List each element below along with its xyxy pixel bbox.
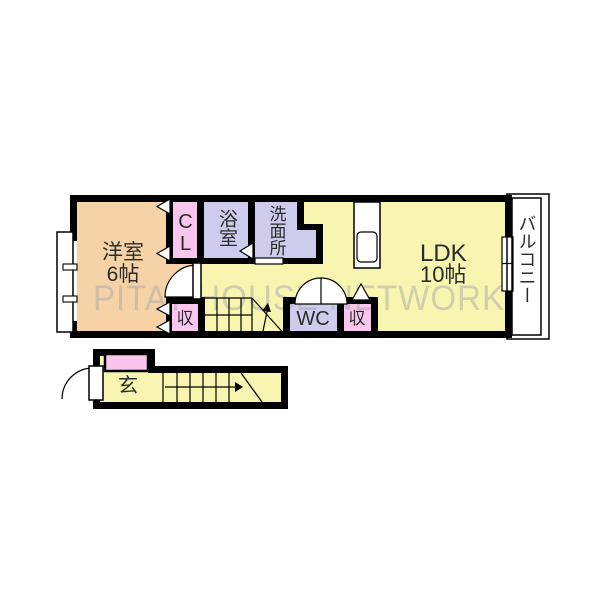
- wall-wc-left: [283, 297, 290, 338]
- wall-entrance-stairs-top: [148, 366, 288, 373]
- western-window-tick-1: [63, 264, 77, 270]
- wall-storage-right-right: [371, 297, 378, 338]
- shoe-cabinet: [105, 354, 148, 371]
- storage-right-label: 収: [349, 309, 366, 328]
- western-door-leaf: [193, 263, 201, 299]
- balcony-label: バルコニー: [517, 214, 537, 304]
- wall-bottom: [70, 331, 512, 338]
- ldk-label-line2: 10帖: [420, 262, 466, 287]
- wc-label: WC: [296, 308, 329, 330]
- wall-closet-right: [197, 195, 204, 264]
- floorplan-drawing: PITAT HOUSE NETWORK: [0, 0, 600, 600]
- floorplan-canvas: PITAT HOUSE NETWORK: [0, 0, 600, 600]
- entrance-door-leaf: [89, 366, 103, 400]
- wall-washroom-bottom: [283, 258, 323, 264]
- storage-left-label: 収: [177, 309, 194, 328]
- western-room-label-line1: 洋室: [102, 241, 144, 264]
- entrance-label: 玄: [118, 374, 138, 397]
- wall-entrance-left-upper: [93, 349, 100, 366]
- kitchen-counter: [354, 202, 380, 268]
- washroom-ext-fill: [255, 230, 316, 258]
- washroom-door-threshold: [255, 258, 283, 264]
- wall-entrance-bottom: [93, 402, 288, 409]
- wall-closet-bath-bottom: [166, 258, 255, 264]
- closet-label: CL: [175, 211, 197, 255]
- washroom-label: 洗面所: [267, 205, 287, 256]
- wall-storage-left-right: [198, 297, 205, 338]
- western-room-label-line2: 6帖: [107, 263, 140, 286]
- wall-top: [70, 195, 512, 202]
- bath-label: 浴室: [216, 209, 238, 247]
- western-window-tick-2: [63, 296, 77, 302]
- kitchen-sink: [357, 232, 377, 262]
- wall-entrance-right: [281, 366, 288, 409]
- western-window: [57, 232, 73, 332]
